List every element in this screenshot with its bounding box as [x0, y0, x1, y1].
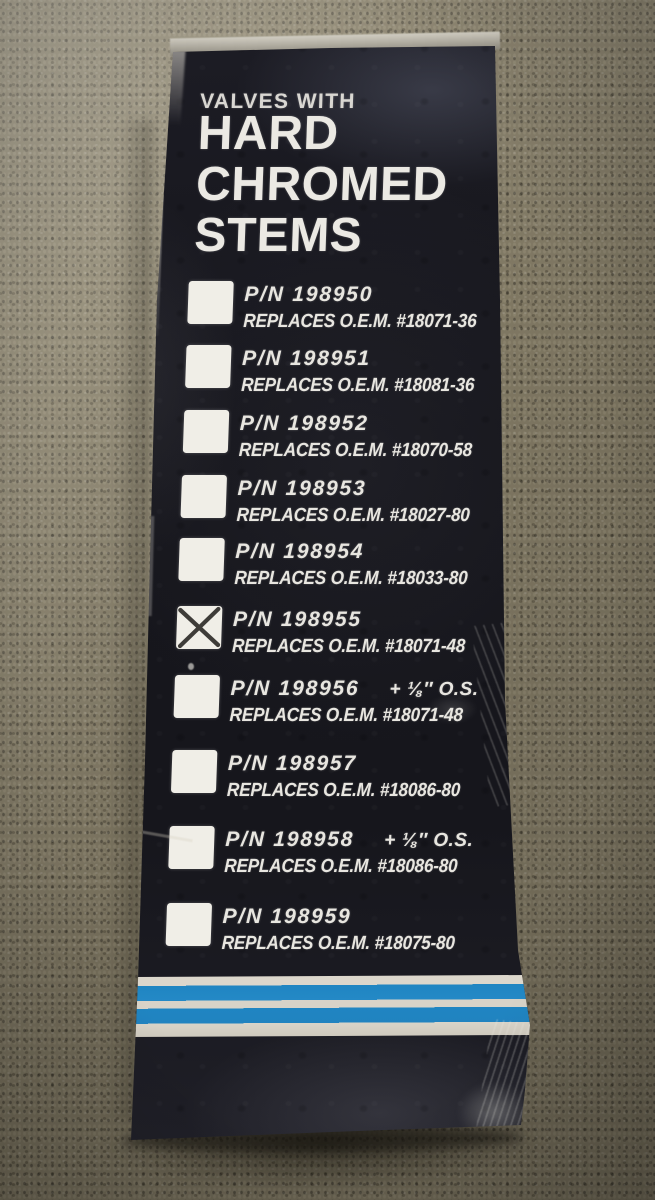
- x-mark-icon: [176, 606, 223, 649]
- part-item-text: P/N 198954 REPLACES O.E.M. #18033-80: [234, 540, 495, 590]
- part-item-text: P/N 198953 REPLACES O.E.M. #18027-80: [236, 477, 497, 527]
- photo-of-product-box: VALVES WITH HARD CHROMED STEMS P/N 19895…: [0, 0, 655, 1200]
- part-number: P/N 198958: [225, 828, 355, 851]
- part-item-text: P/N 198959 REPLACES O.E.M. #18075-80: [221, 905, 482, 955]
- part-item-text: P/N 198952 REPLACES O.E.M. #18070-58: [238, 412, 499, 462]
- replaces-oem: REPLACES O.E.M. #18086-80: [224, 856, 458, 878]
- oversize-label: [403, 285, 404, 306]
- oversize-label: [386, 754, 387, 775]
- checkbox-unchecked: [168, 826, 215, 869]
- replaces-oem: REPLACES O.E.M. #18081-36: [241, 375, 475, 397]
- checkbox-unchecked: [171, 750, 218, 793]
- part-number: P/N 198959: [222, 905, 352, 928]
- part-number: P/N 198951: [242, 347, 372, 370]
- wear-mark: [426, 694, 478, 724]
- checkbox-unchecked: [183, 410, 230, 453]
- part-number: P/N 198953: [237, 477, 367, 500]
- stripe-band: [125, 975, 534, 1037]
- oversize-label: [381, 907, 382, 928]
- oversize-label: [391, 610, 392, 631]
- checkbox-unchecked: [187, 281, 234, 324]
- checkbox-unchecked: [178, 538, 225, 581]
- oversize-label: + ⅛″ O.S.: [384, 830, 474, 851]
- wear-mark: [188, 663, 194, 670]
- part-number: P/N 198957: [228, 752, 358, 775]
- part-item-text: P/N 198958+ ⅛″ O.S. REPLACES O.E.M. #180…: [224, 828, 485, 878]
- replaces-oem: REPLACES O.E.M. #18027-80: [236, 505, 470, 527]
- oversize-label: [398, 414, 399, 435]
- checkbox-unchecked: [181, 475, 228, 518]
- part-number: P/N 198956: [230, 677, 360, 700]
- replaces-oem: REPLACES O.E.M. #18075-80: [221, 933, 455, 955]
- checkbox-unchecked: [174, 675, 221, 718]
- part-number: P/N 198954: [235, 540, 365, 563]
- product-box-panel: VALVES WITH HARD CHROMED STEMS P/N 19895…: [131, 46, 532, 1146]
- title-line-3: STEMS: [193, 210, 446, 261]
- replaces-oem: REPLACES O.E.M. #18071-36: [243, 311, 477, 333]
- checkbox-checked: [176, 606, 223, 649]
- part-item-text: P/N 198950 REPLACES O.E.M. #18071-36: [243, 283, 504, 333]
- part-item-text: P/N 198951 REPLACES O.E.M. #18081-36: [241, 347, 502, 397]
- title-line-1: HARD: [197, 108, 450, 159]
- part-item-text: P/N 198955 REPLACES O.E.M. #18071-48: [232, 608, 493, 658]
- part-number: P/N 198955: [233, 608, 363, 631]
- replaces-oem: REPLACES O.E.M. #18033-80: [234, 568, 468, 590]
- oversize-label: [394, 542, 395, 563]
- replaces-oem: REPLACES O.E.M. #18070-58: [238, 440, 472, 462]
- replaces-oem: REPLACES O.E.M. #18071-48: [232, 636, 466, 658]
- part-number: P/N 198950: [244, 283, 374, 306]
- oversize-label: [401, 349, 402, 370]
- product-title: HARD CHROMED STEMS: [193, 108, 450, 261]
- checkbox-unchecked: [166, 903, 213, 946]
- title-line-2: CHROMED: [195, 159, 448, 210]
- part-number: P/N 198952: [239, 412, 369, 435]
- checkbox-unchecked: [185, 345, 232, 388]
- part-item-text: P/N 198957 REPLACES O.E.M. #18086-80: [227, 752, 488, 802]
- replaces-oem: REPLACES O.E.M. #18086-80: [227, 780, 461, 802]
- oversize-label: [396, 479, 397, 500]
